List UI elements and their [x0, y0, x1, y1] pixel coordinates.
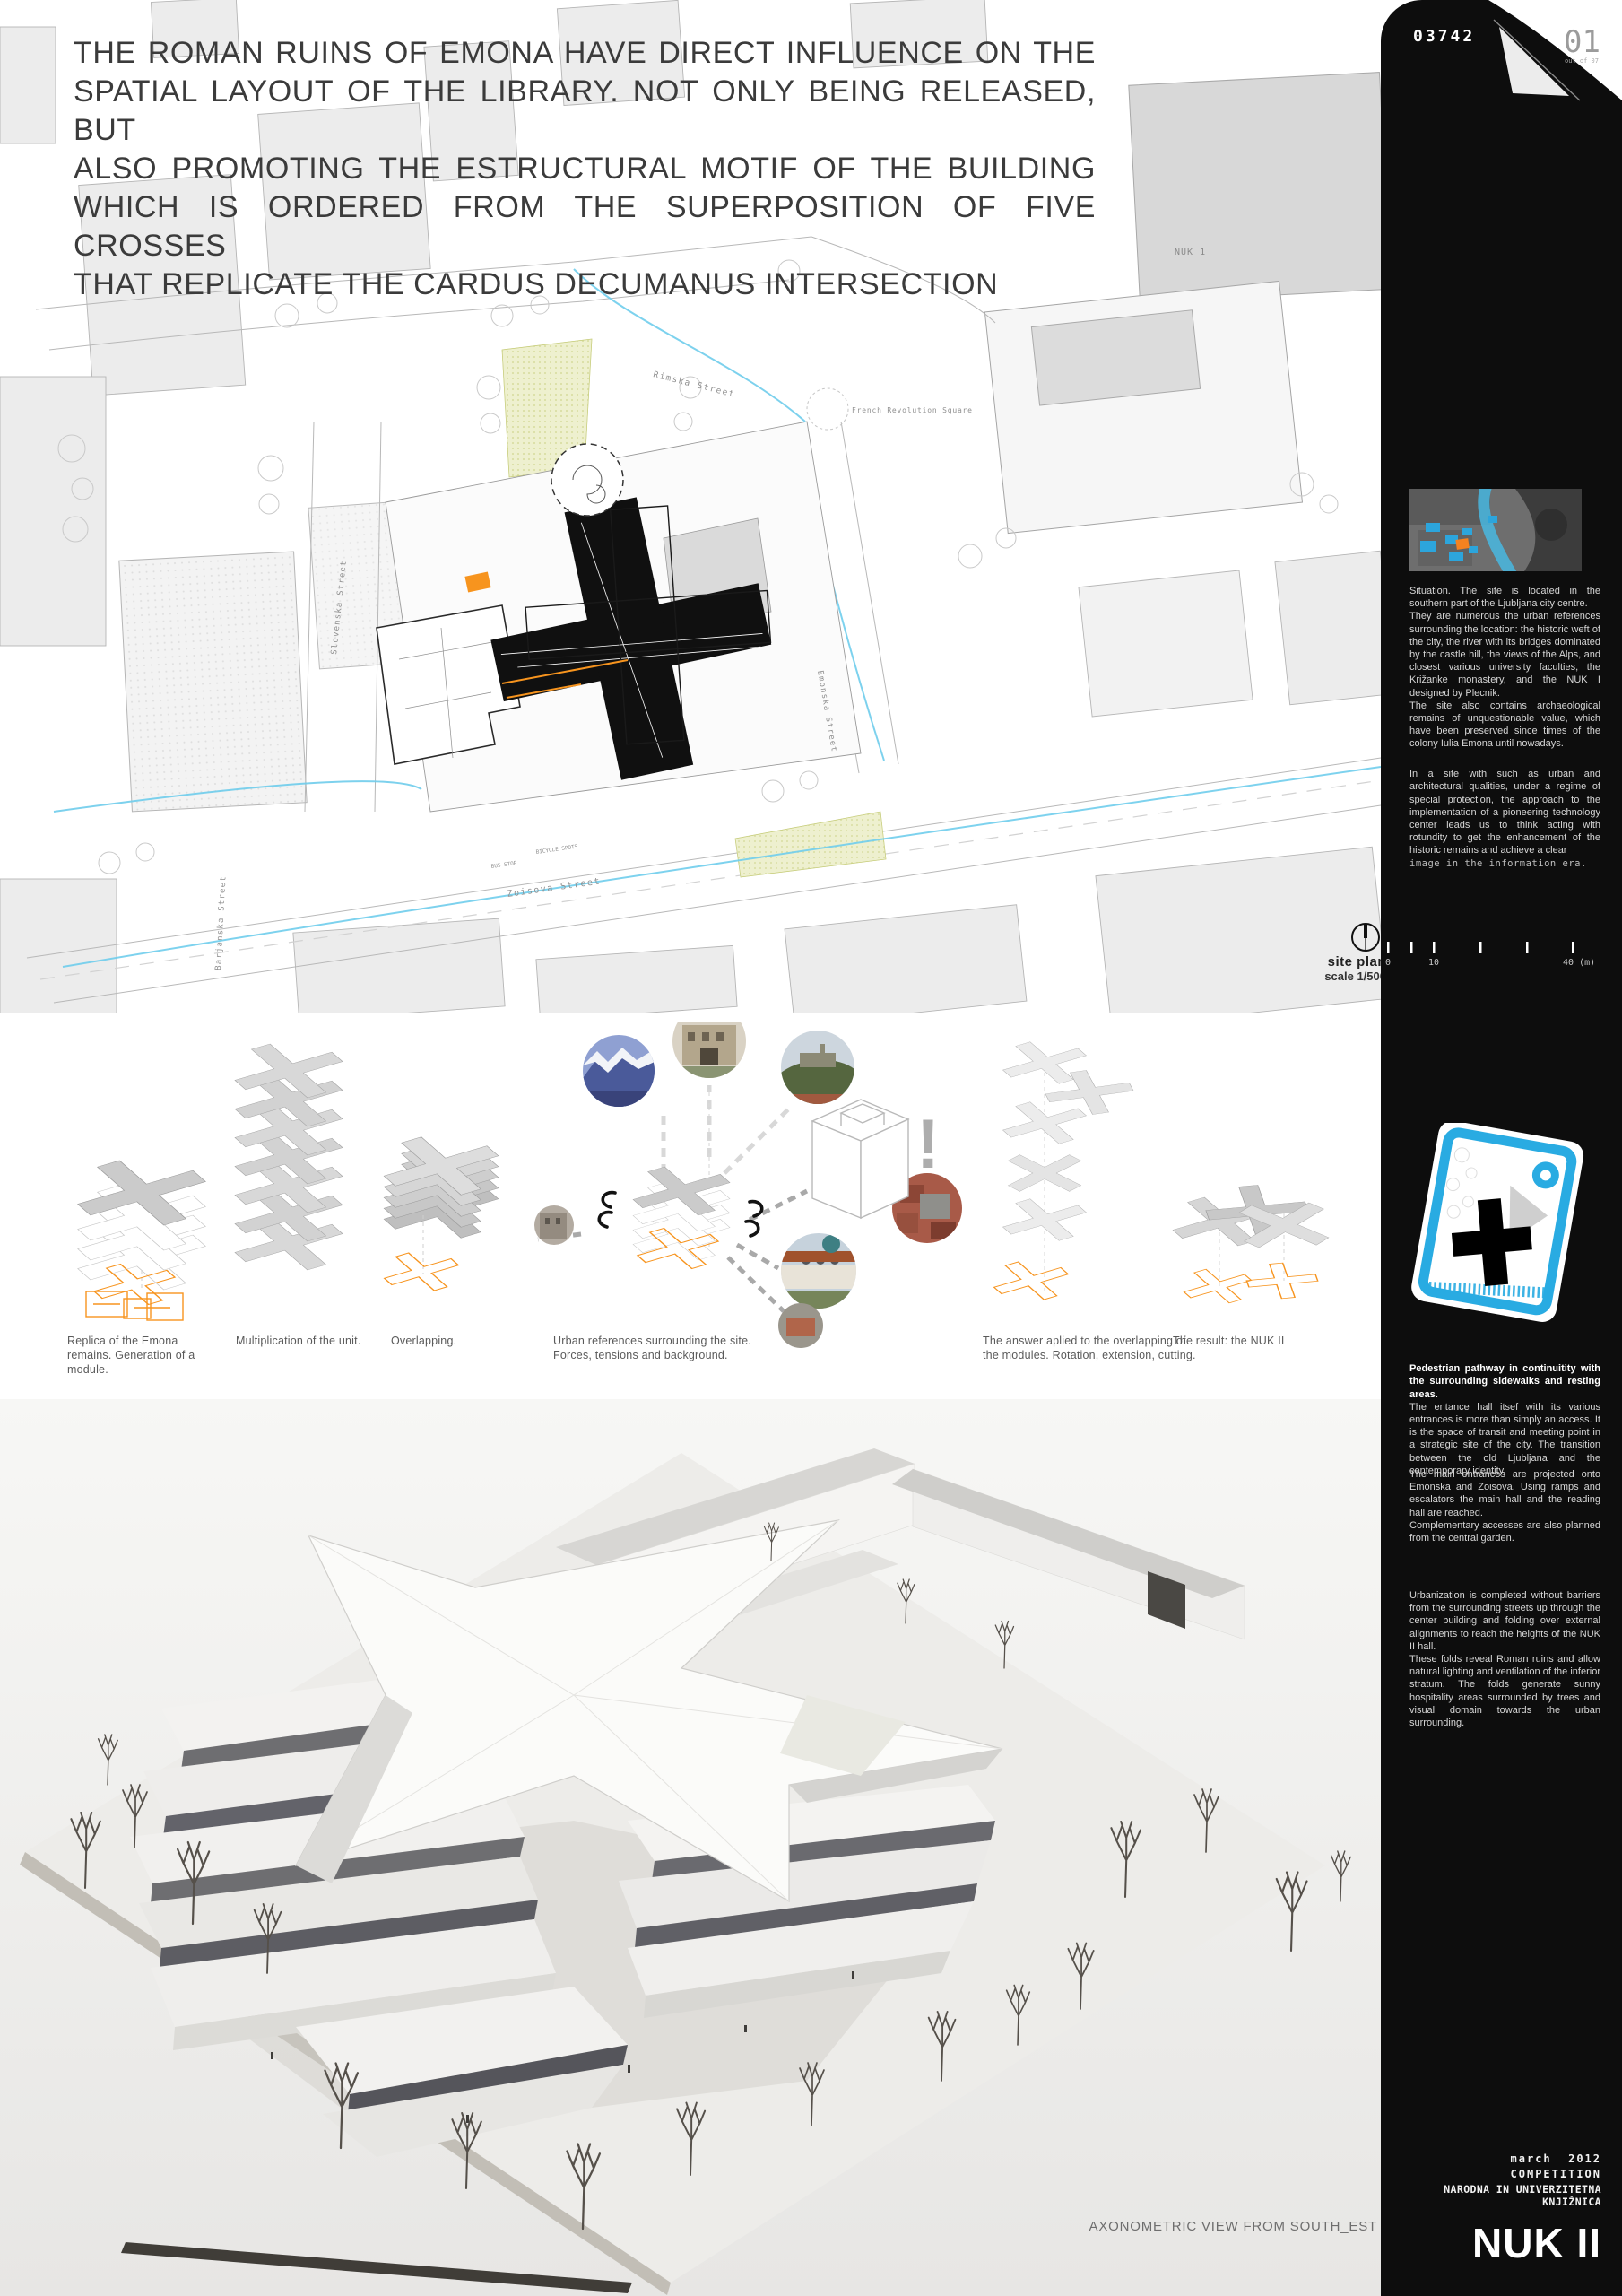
urbanization-text: Urbanization is completed without barrie… [1409, 1589, 1600, 1729]
square-label: French Revolution Square [852, 406, 973, 414]
concept-caption-5: The answer aplied to the overlapping of … [983, 1334, 1196, 1362]
diagram-answer [978, 1033, 1142, 1308]
statement-line: THE ROMAN RUINS OF EMONA HAVE DIRECT INF… [74, 34, 1096, 73]
approach-text: In a site with such as urban and archite… [1409, 755, 1600, 870]
sidebar-footer: march 2012 COMPETITION NARODNA IN UNIVER… [1381, 2152, 1601, 2267]
emona-remains-sketch [86, 1291, 183, 1320]
aerial-photo [1409, 489, 1582, 571]
diagram-multiplication [213, 1032, 365, 1281]
page-number: 01 [1564, 24, 1600, 60]
project-statement: THE ROMAN RUINS OF EMONA HAVE DIRECT INF… [74, 34, 1096, 304]
statement-line: ALSO PROMOTING THE ESTRUCTURAL MOTIF OF … [74, 150, 1096, 188]
north-arrow-icon [1350, 922, 1381, 952]
scale-bar: 0 10 40 (m) [1381, 938, 1609, 974]
photo-castle [781, 1031, 854, 1104]
scalebar-10: 10 [1428, 958, 1439, 968]
concept-caption-6: The result: the NUK II [1173, 1334, 1363, 1348]
pathway-heading: Pedestrian pathway in continuitity with … [1409, 1363, 1600, 1399]
footer-competition: COMPETITION [1381, 2168, 1601, 2180]
photo-monastery [781, 1233, 856, 1309]
diagram-result [1152, 1181, 1355, 1309]
approach-text-body: In a site with such as urban and archite… [1409, 769, 1600, 856]
approach-text-mono: image in the information era. [1409, 858, 1587, 869]
page-count-note: out of 07 [1565, 57, 1599, 65]
diagram-urban-references: ! [534, 1022, 962, 1348]
statement-line: THAT REPLICATE THE CARDUS DECUMANUS INTE… [74, 265, 1096, 304]
concept-caption-4: Urban references surrounding the site. F… [553, 1334, 785, 1362]
pedestrian-plan-image [1408, 1123, 1587, 1343]
site-plan-scale: scale 1/500 [1237, 970, 1386, 983]
site-plan-title: site plan [1237, 954, 1386, 970]
pathway-body: The entance hall itsef with its various … [1409, 1402, 1600, 1476]
page-curl: 01 out of 07 [1381, 0, 1622, 126]
diagram-overlapping [360, 1125, 522, 1299]
site-plan-label: site plan scale 1/500 [1237, 922, 1386, 983]
model-photo [0, 1399, 1381, 2296]
project-title: NUK II [1381, 2219, 1601, 2267]
diagram-module [51, 1147, 232, 1320]
statement-line: SPATIAL LAYOUT OF THE LIBRARY. NOT ONLY … [74, 73, 1096, 150]
model-caption: AXONOMETRIC VIEW FROM SOUTH_EST [959, 2219, 1377, 2234]
photo-nuk1 [672, 1022, 746, 1078]
scalebar-40: 40 (m) [1563, 958, 1595, 968]
scalebar-0: 0 [1385, 958, 1391, 968]
exclamation-mark: ! [916, 1104, 940, 1183]
concept-caption-3: Overlapping. [391, 1334, 516, 1348]
wireframe-box [812, 1100, 908, 1218]
photo-alps [583, 1035, 655, 1107]
footer-date: march 2012 [1381, 2152, 1601, 2165]
entrances-text: The main entrances are projected onto Em… [1409, 1468, 1600, 1544]
situation-text: Situation. The site is located in the so… [1409, 585, 1600, 751]
photo-city [778, 1303, 823, 1348]
competition-board: NUK 1 [0, 0, 1622, 2296]
photo-street [534, 1205, 574, 1245]
square-block [984, 281, 1302, 533]
nuk1-label: NUK 1 [1175, 248, 1206, 257]
statement-line: WHICH IS ORDERED FROM THE SUPERPOSITION … [74, 188, 1096, 265]
board-number: 03742 [1413, 27, 1475, 46]
pathway-text: Pedestrian pathway in continuitity with … [1409, 1350, 1600, 1477]
concept-caption-2: Multiplication of the unit. [236, 1334, 406, 1348]
footer-client: NARODNA IN UNIVERZITETNA KNJIŽNICA [1381, 2183, 1601, 2208]
sidebar: 01 out of 07 03742 0 10 40 (m) [1381, 0, 1622, 2296]
concept-caption-1: Replica of the Emona remains. Generation… [67, 1334, 221, 1377]
nuk1-block [1129, 73, 1381, 302]
